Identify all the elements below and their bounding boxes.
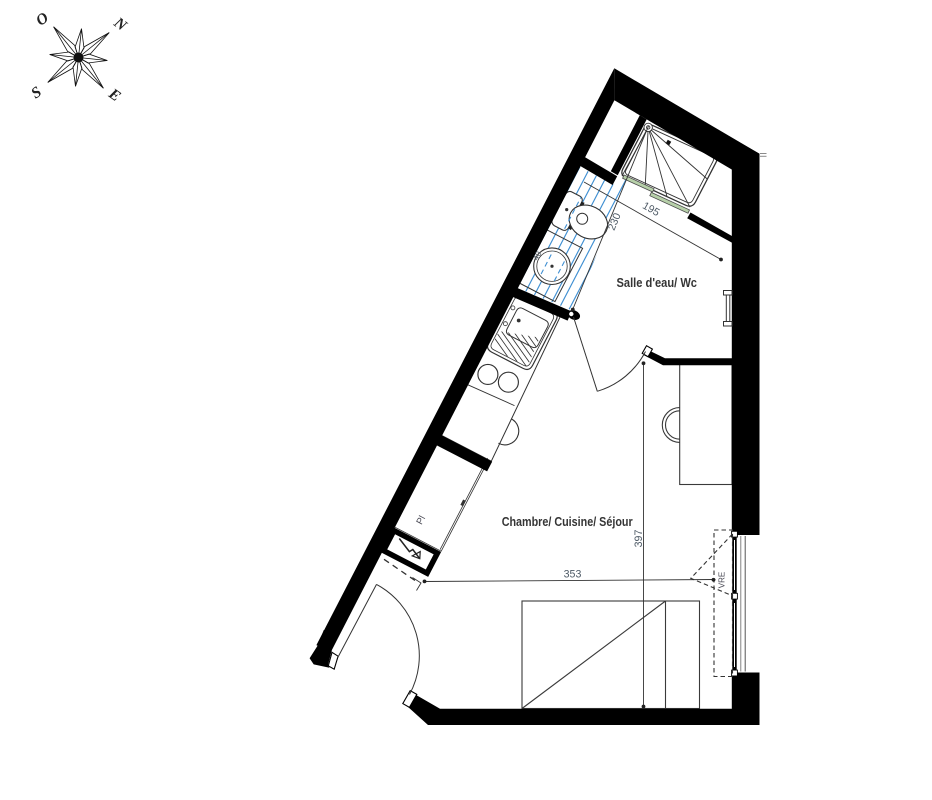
svg-text:353: 353 <box>564 569 582 581</box>
svg-text:Salle d'eau/ Wc: Salle d'eau/ Wc <box>617 275 698 290</box>
svg-text:Chambre/ Cuisine/ Séjour: Chambre/ Cuisine/ Séjour <box>502 514 633 529</box>
svg-text:397: 397 <box>633 530 645 548</box>
svg-text:VRE: VRE <box>718 572 727 588</box>
